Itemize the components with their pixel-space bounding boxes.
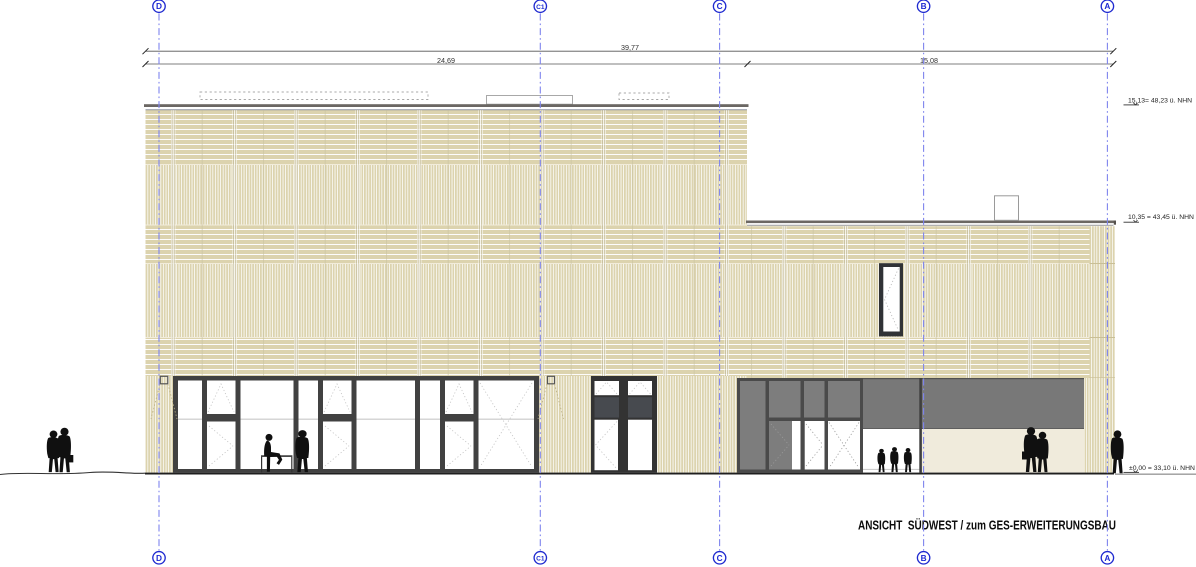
svg-text:C1: C1	[536, 4, 545, 11]
svg-text:D: D	[156, 553, 162, 563]
svg-text:A: A	[1104, 553, 1110, 563]
svg-text:C1: C1	[536, 556, 545, 563]
svg-text:D: D	[156, 1, 162, 11]
svg-text:C: C	[717, 1, 723, 11]
svg-text:ANSICHT SÜDWEST / zum GES-ERW: ANSICHT SÜDWEST / zum GES-ERWEITERUNGSBA…	[858, 518, 1116, 533]
svg-text:C: C	[717, 553, 723, 563]
svg-text:39,77: 39,77	[621, 43, 639, 52]
svg-text:10,35 = 43,45 ü. NHN: 10,35 = 43,45 ü. NHN	[1128, 214, 1194, 221]
svg-text:A: A	[1104, 1, 1110, 11]
svg-text:15,08: 15,08	[920, 56, 938, 65]
svg-text:B: B	[921, 553, 927, 563]
svg-text:±0,00 = 33,10 ü. NHN: ±0,00 = 33,10 ü. NHN	[1129, 465, 1195, 472]
svg-text:24,69: 24,69	[437, 56, 455, 65]
svg-text:15,13= 48,23 ü. NHN: 15,13= 48,23 ü. NHN	[1128, 98, 1192, 105]
svg-text:B: B	[921, 1, 927, 11]
